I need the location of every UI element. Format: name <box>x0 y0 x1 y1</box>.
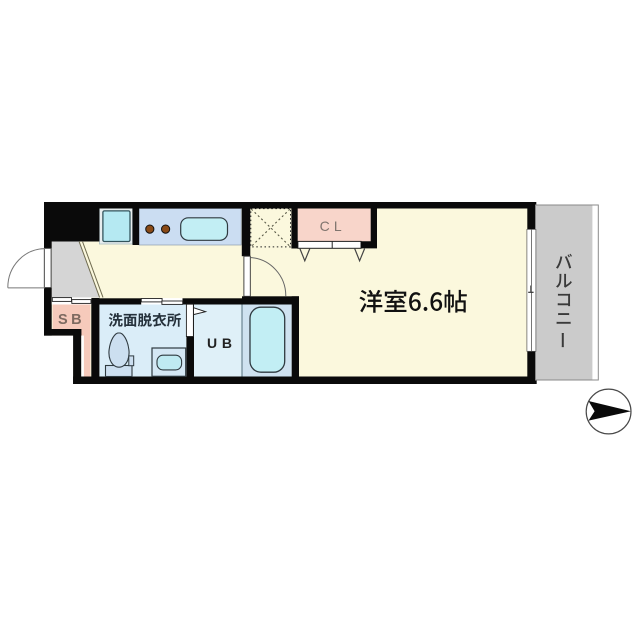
svg-text:UB: UB <box>207 335 237 351</box>
svg-text:SB: SB <box>58 312 85 328</box>
svg-text:CL: CL <box>320 218 346 234</box>
